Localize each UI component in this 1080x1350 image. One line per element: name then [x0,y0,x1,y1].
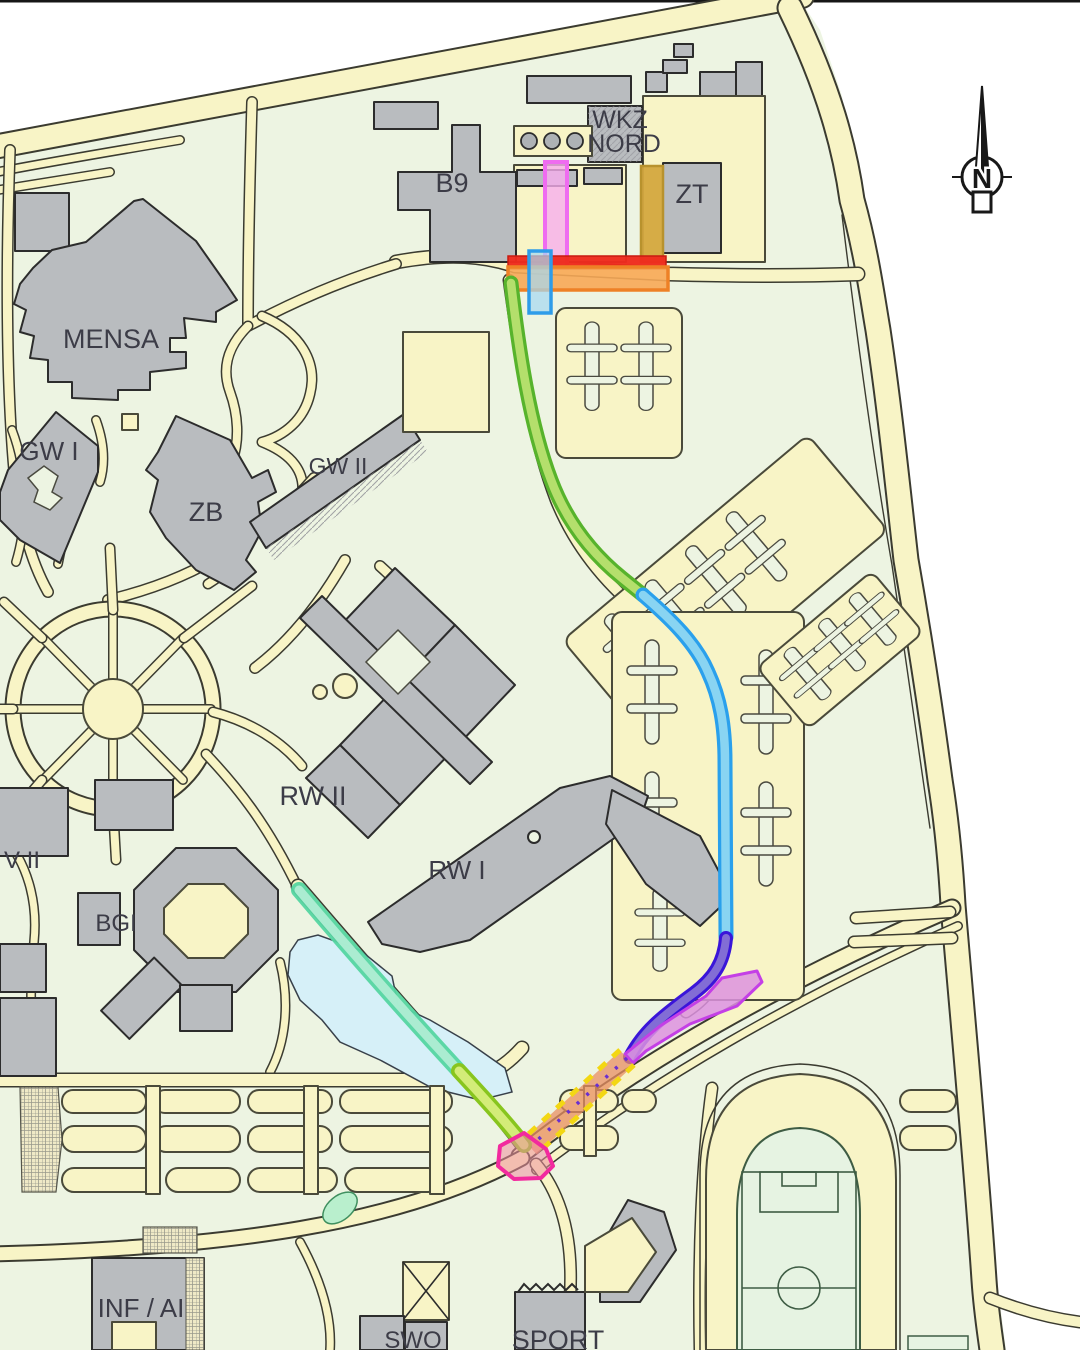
building-small [674,44,693,57]
building-comb-part [584,168,622,184]
plaza-center [83,679,143,739]
building-w2 [0,788,68,856]
building-pale-hall [403,332,489,432]
round-kiosk [333,674,357,698]
building-west [95,780,173,830]
housing-connector [146,1086,160,1194]
label-gw2: GW II [309,453,368,479]
building-near-mensa [15,193,69,251]
label-w2: V II [4,847,40,874]
parking-hatch [143,1227,197,1253]
inf-ai-hatch [186,1258,204,1350]
housing-bar [900,1090,956,1112]
bgi-courtyard [164,884,248,958]
housing-connector [304,1086,318,1194]
housing-bar [62,1090,146,1113]
label-sport: SPORT [512,1325,605,1350]
label-gw1: GW I [19,436,78,466]
bgi-annex [180,985,232,1031]
inf-ai-courtyard [112,1322,156,1350]
label-rw2: RW II [280,781,347,811]
label-swo: SWO [384,1327,441,1350]
round-structure [567,133,583,149]
label-b9: B9 [435,168,468,198]
round-structure [544,133,560,149]
housing-bar [345,1168,440,1192]
building-west [0,944,46,992]
small-field [908,1336,968,1350]
housing-bar [62,1168,158,1192]
label-inf-ai: INF / AI [98,1293,185,1323]
label-zt: ZT [676,179,709,209]
route-blue-short [529,251,551,313]
housing-bar [248,1126,332,1152]
compass-base [973,192,991,212]
top-border-line [0,0,1080,3]
small-square [122,414,138,430]
label-mensa: MENSA [63,324,159,354]
housing-bar [622,1090,656,1112]
compass-n-label: N [972,163,992,194]
label-bgi: BGI [95,910,136,937]
round-structure [521,133,537,149]
building-small [646,72,667,92]
housing-bar [154,1126,240,1152]
label-zb: ZB [189,497,224,527]
housing-connector [430,1086,444,1194]
route-gold-vertical [641,166,663,262]
housing-bar [166,1168,240,1192]
campus-map-page: WKZ NORD B9 ZT MENSA GW I ZB GW II RW II… [0,0,1080,1350]
building-above-b9 [374,102,438,129]
label-wkz-nord: NORD [587,130,661,158]
soccer-field [737,1128,860,1350]
housing-bar [154,1090,240,1113]
housing-bar [900,1126,956,1150]
label-rw1: RW I [428,855,485,885]
building-small [700,72,736,96]
round-kiosk-small [313,685,327,699]
building-small [663,60,687,73]
building-north-strip [527,76,631,103]
campus-map: WKZ NORD B9 ZT MENSA GW I ZB GW II RW II… [0,0,1080,1350]
rw1-circle-mark [528,831,540,843]
housing-bar [248,1168,337,1192]
parking-hatch [20,1087,62,1192]
housing-bar [248,1090,332,1113]
housing-bar [62,1126,146,1152]
building-west [0,998,56,1076]
